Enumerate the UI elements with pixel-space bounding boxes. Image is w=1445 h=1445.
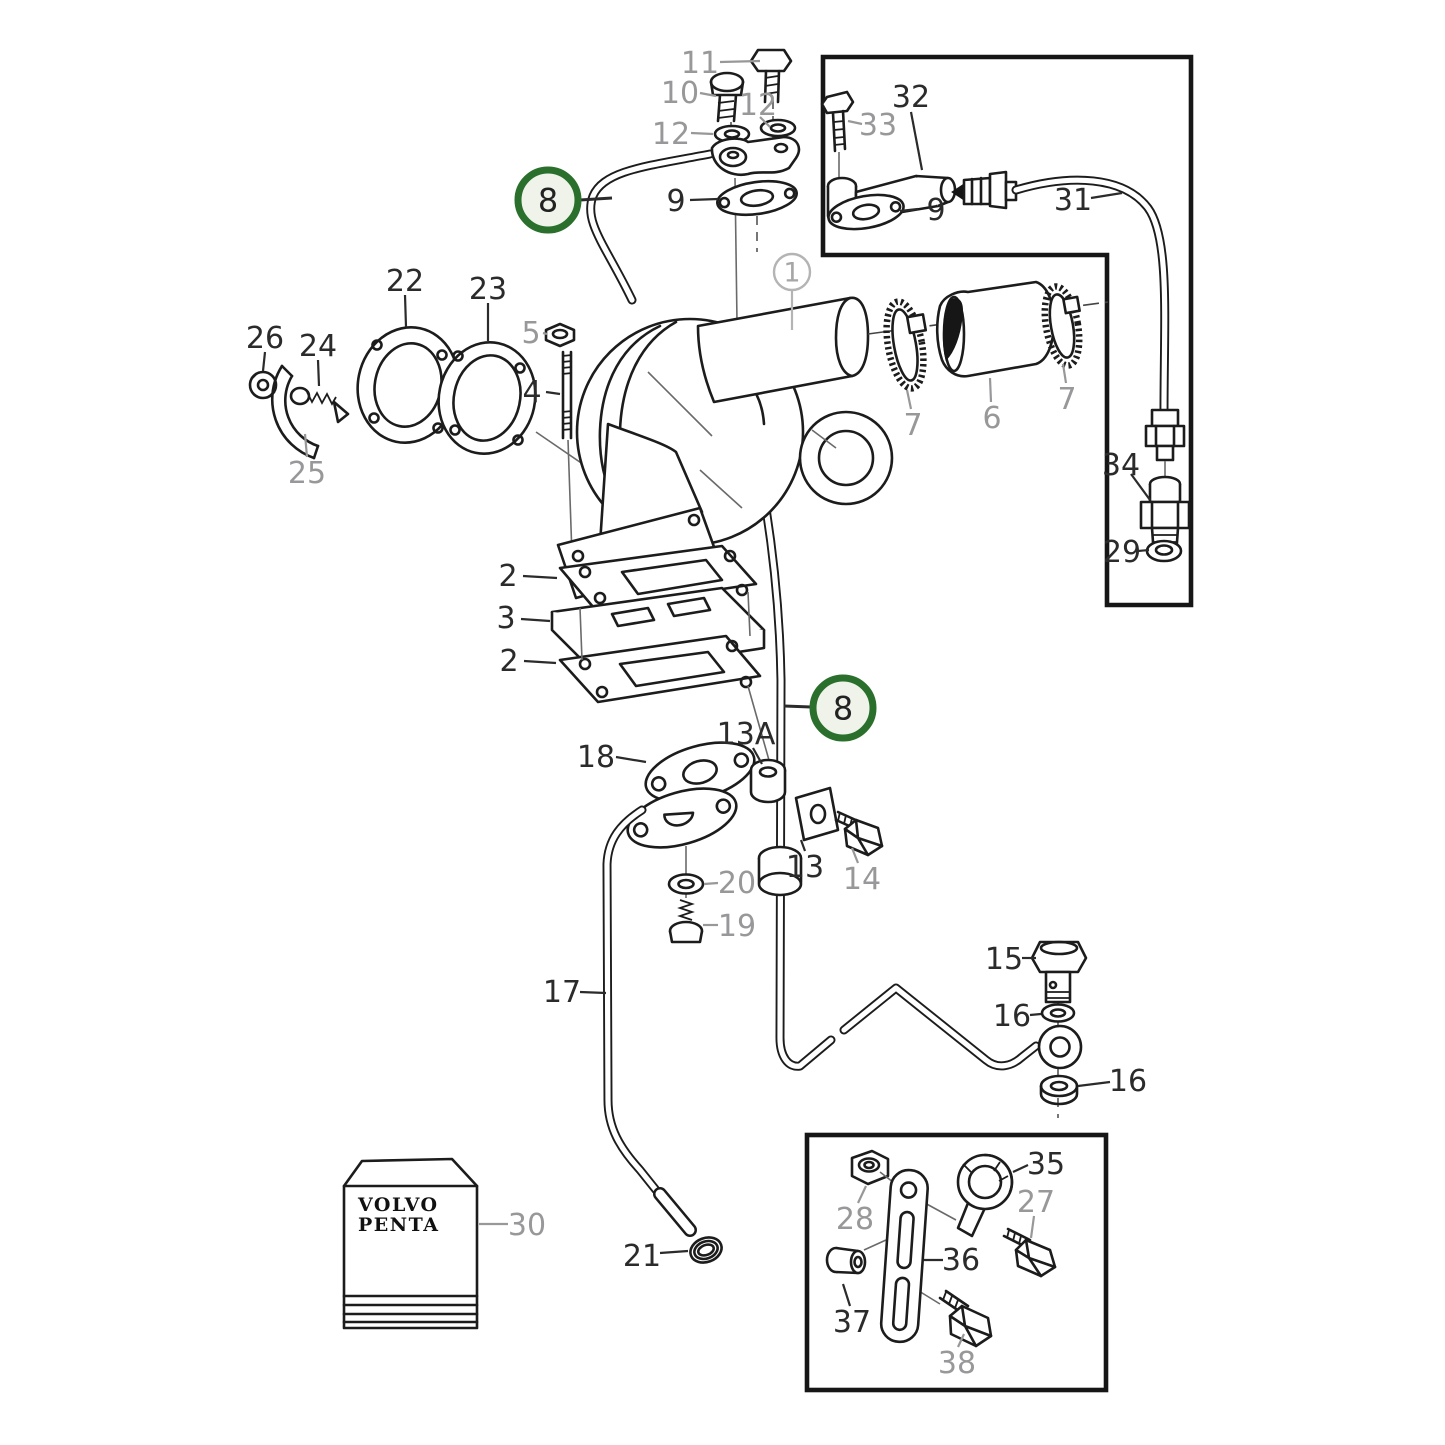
oil-feed-pipe-top — [591, 154, 710, 300]
brand-line-2: PENTA — [358, 1214, 439, 1236]
part-label-19: 19 — [703, 909, 756, 944]
part-label-2: 2 — [498, 559, 557, 594]
part-number: 1 — [783, 258, 800, 289]
hose-clamp-left — [881, 298, 936, 392]
part-number: 9 — [926, 193, 945, 228]
leader-line — [907, 390, 911, 409]
part-label-5: 5 — [521, 316, 547, 351]
part-label-33: 33 — [848, 108, 897, 143]
leader-line — [1013, 1165, 1028, 1172]
part-label-10: 10 — [661, 76, 716, 111]
banjo-fitting-right — [1032, 942, 1086, 1118]
part-number: 14 — [843, 862, 881, 897]
part-number: 17 — [543, 975, 581, 1010]
part-number: 6 — [982, 401, 1001, 436]
part-number: 20 — [718, 866, 756, 901]
hose-and-clamps — [881, 282, 1089, 391]
leader-line — [580, 992, 606, 993]
stud-and-nut — [546, 324, 574, 556]
part-number: 29 — [1103, 535, 1141, 570]
part-label-9: 9 — [666, 184, 718, 219]
part-label-6: 6 — [982, 378, 1001, 436]
part-number: 13 — [786, 850, 824, 885]
part-label-29: 29 — [1103, 535, 1149, 570]
part-number: 7 — [903, 408, 922, 443]
part-label-4: 4 — [522, 375, 560, 410]
seal-ring-21 — [687, 1233, 725, 1266]
part-label-14: 14 — [843, 848, 881, 897]
vband-clamp-parts — [250, 366, 348, 458]
leader-line — [843, 1284, 850, 1306]
leader-line — [523, 576, 557, 578]
circled-part-label-8: 8 — [518, 170, 612, 230]
leader-line — [690, 199, 718, 200]
part-number: 10 — [661, 76, 699, 111]
part-label-23: 23 — [469, 272, 507, 341]
part-label-27: 27 — [1017, 1185, 1055, 1238]
part-number: 21 — [623, 1239, 661, 1274]
part-number: 3 — [496, 601, 515, 636]
brand-line-1: VOLVO — [357, 1194, 439, 1216]
part-label-21: 21 — [623, 1239, 688, 1274]
part-label-2: 2 — [499, 644, 556, 679]
leader-line — [521, 619, 550, 621]
part-number: 35 — [1027, 1147, 1065, 1182]
part-label-26: 26 — [246, 321, 284, 371]
part-label-7: 7 — [1057, 364, 1076, 417]
part-number: 28 — [836, 1202, 874, 1237]
part-label-37: 37 — [833, 1284, 871, 1340]
part-label-18: 18 — [577, 740, 646, 775]
leader-line — [1078, 1082, 1110, 1086]
part-number: 25 — [288, 456, 326, 491]
leader-line — [546, 392, 560, 394]
part-number: 9 — [666, 184, 685, 219]
leader-line — [318, 360, 319, 386]
part-number: 19 — [718, 909, 756, 944]
part-number: 33 — [859, 108, 897, 143]
part-number: 8 — [833, 690, 853, 728]
part-number: 34 — [1102, 448, 1140, 483]
leader-line — [784, 706, 811, 707]
part-number: 12 — [652, 117, 690, 152]
leader-line — [858, 1186, 866, 1203]
part-number: 8 — [538, 182, 558, 220]
leader-line — [704, 883, 718, 884]
part-number: 30 — [508, 1208, 546, 1243]
part-label-35: 35 — [1013, 1147, 1065, 1182]
part-number: 5 — [521, 316, 540, 351]
leader-line — [990, 378, 991, 402]
part-label-13: 13 — [786, 840, 824, 885]
part-label-24: 24 — [299, 329, 337, 386]
leader-line — [1091, 193, 1122, 198]
part-number: 22 — [386, 264, 424, 299]
leader-line — [660, 1251, 688, 1253]
leader-line — [720, 61, 760, 62]
part-number: 16 — [993, 999, 1031, 1034]
oil-return-pipe — [764, 496, 1036, 1066]
part-number: 13A — [717, 717, 776, 752]
part-label-16: 16 — [993, 999, 1041, 1034]
part-number: 12 — [739, 88, 777, 123]
leader-line — [1063, 364, 1066, 383]
leader-line — [405, 295, 406, 327]
part-number: 15 — [985, 942, 1023, 977]
part-label-3: 3 — [496, 601, 550, 636]
part-number: 32 — [892, 80, 930, 115]
part-number: 16 — [1109, 1064, 1147, 1099]
leader-line — [911, 112, 922, 170]
part-number: 18 — [577, 740, 615, 775]
part-number: 4 — [522, 375, 541, 410]
part-label-7: 7 — [903, 390, 922, 443]
part-label-32: 32 — [892, 80, 930, 170]
part-number: 7 — [1057, 382, 1076, 417]
leader-line — [524, 661, 556, 663]
part-number: 2 — [499, 644, 518, 679]
circled-part-label-8: 8 — [784, 678, 873, 738]
part-number: 31 — [1054, 183, 1092, 218]
drain-pipe — [607, 810, 725, 1267]
part-label-12: 12 — [739, 88, 777, 127]
part-label-30: 30 — [479, 1208, 546, 1243]
leader-line — [580, 198, 612, 200]
part-label-15: 15 — [985, 942, 1036, 977]
part-label-25: 25 — [288, 434, 326, 491]
part-number: 26 — [246, 321, 284, 356]
part-label-17: 17 — [543, 975, 606, 1010]
part-label-36: 36 — [924, 1243, 980, 1278]
part-number: 24 — [299, 329, 337, 364]
part-label-16: 16 — [1078, 1064, 1147, 1099]
leader-line — [1030, 1014, 1041, 1015]
part-number: 37 — [833, 1305, 871, 1340]
part-number: 38 — [938, 1346, 976, 1381]
part-number: 23 — [469, 272, 507, 307]
part-label-12: 12 — [652, 117, 713, 152]
leader-line — [691, 133, 713, 134]
part-label-28: 28 — [836, 1186, 874, 1237]
part-number: 36 — [942, 1243, 980, 1278]
part-number: 2 — [498, 559, 517, 594]
exploded-diagram-canvas: VOLVO PENTA — [0, 0, 1445, 1445]
part-label-20: 20 — [704, 866, 756, 901]
parts-diagram-page: { "diagram": { "brand_box": { "line1": "… — [0, 0, 1445, 1445]
gasket-kit-box: VOLVO PENTA — [344, 1159, 477, 1328]
part-number: 27 — [1017, 1185, 1055, 1220]
part-label-22: 22 — [386, 264, 424, 327]
leader-line — [543, 333, 547, 334]
leader-line — [616, 757, 646, 762]
